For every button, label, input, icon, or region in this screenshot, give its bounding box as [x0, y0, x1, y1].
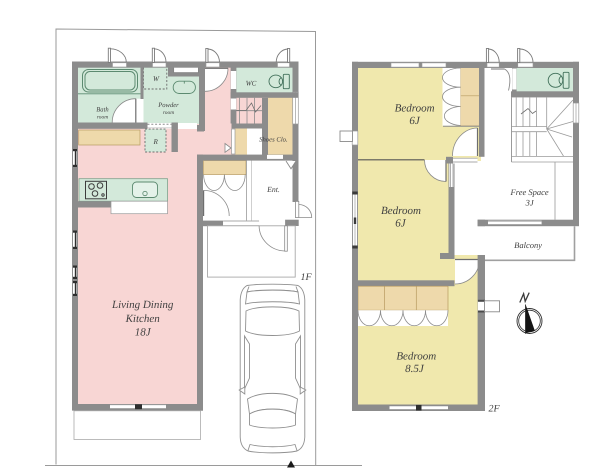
svg-text:R: R — [153, 138, 159, 146]
svg-text:1F: 1F — [301, 272, 313, 283]
svg-text:W: W — [153, 75, 160, 83]
svg-text:room: room — [97, 115, 108, 121]
svg-text:Powder: Powder — [157, 102, 179, 109]
svg-text:Balcony: Balcony — [514, 240, 542, 250]
svg-text:Free Space: Free Space — [510, 187, 549, 197]
svg-text:6J: 6J — [395, 218, 407, 230]
svg-text:3J: 3J — [525, 198, 535, 208]
svg-text:Bedroom: Bedroom — [381, 205, 421, 217]
svg-text:18J: 18J — [135, 327, 152, 339]
svg-text:Bedroom: Bedroom — [395, 103, 435, 115]
svg-text:room: room — [163, 110, 174, 116]
svg-text:Kitchen: Kitchen — [125, 313, 161, 325]
svg-text:Ent.: Ent. — [266, 185, 280, 194]
svg-text:Bath: Bath — [96, 107, 109, 114]
svg-text:6J: 6J — [409, 115, 421, 127]
svg-text:8.5J: 8.5J — [405, 363, 425, 375]
svg-text:WC: WC — [246, 80, 257, 88]
svg-text:2F: 2F — [489, 404, 501, 415]
svg-text:Living Dining: Living Dining — [111, 299, 174, 311]
svg-text:Bedroom: Bedroom — [396, 351, 436, 363]
svg-text:Shoes Clo.: Shoes Clo. — [259, 137, 288, 144]
